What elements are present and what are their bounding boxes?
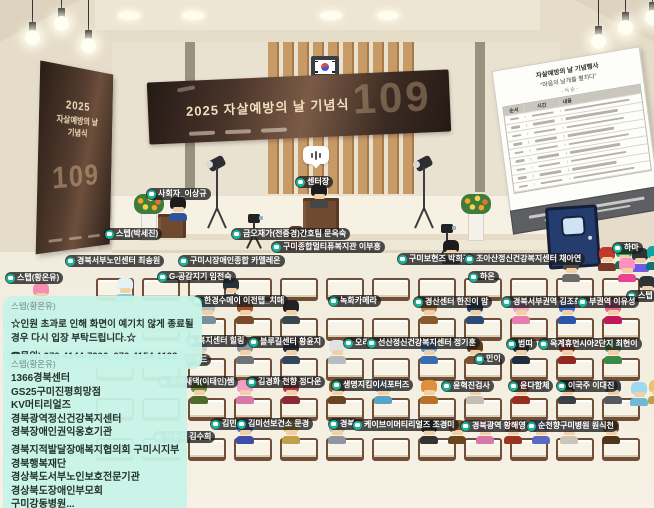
avatar-body — [420, 396, 438, 404]
avatar-face — [226, 288, 237, 293]
avatar-face — [286, 350, 297, 355]
name-tag-label: 스텝(황온유) — [17, 272, 59, 284]
avatar-body — [562, 274, 580, 282]
avatar-body — [512, 316, 530, 324]
name-tag-label: 구미보현즈 박희경 — [409, 253, 470, 265]
name-tag-label: 하온 — [480, 271, 495, 283]
ceiling-light-icon — [118, 11, 140, 20]
avatar[interactable] — [418, 380, 440, 404]
chat-line: 구미강동병원... — [11, 498, 179, 508]
name-tag: 생명지킴이서포터즈 — [331, 379, 413, 391]
avatar-face — [173, 207, 184, 212]
name-tag-label: 구미종합멀티퓨복지관 이부흥 — [283, 241, 381, 253]
name-tag-label: 옥계휴먼시아2단지 최현이 — [550, 338, 638, 350]
name-tag-label: 김민 — [222, 418, 237, 430]
chat-line: GS25구미진평희망점 — [11, 386, 179, 400]
chat-bubble-icon — [232, 230, 241, 239]
name-tag-label: 블루길센터 황윤지 — [260, 336, 321, 348]
avatar-face — [634, 392, 645, 397]
avatar-body — [236, 356, 254, 364]
name-tag-label: 녹화카메라 — [340, 295, 377, 307]
name-tag-label: G-공감지기 임전숙 — [169, 271, 232, 283]
chat-bubble-icon — [66, 257, 75, 266]
avatar-body — [512, 356, 530, 364]
lamp-bulb — [81, 38, 96, 53]
name-tag-label: 순천향구미병원 원식천 — [538, 420, 614, 432]
name-tag-label: 경북서부권역 김조희 — [513, 296, 581, 308]
chat-bubble-icon — [247, 378, 256, 387]
chat-line: KV머티리얼즈 — [11, 399, 179, 413]
schedule-cell — [507, 132, 528, 138]
avatar[interactable] — [167, 197, 189, 221]
chat-line: ☆인원 초과로 인해 화면이 예기치 않게 종료될 — [3, 318, 202, 332]
avatar-face — [202, 310, 213, 315]
avatar-body — [236, 396, 254, 404]
avatar-face — [424, 310, 435, 315]
name-tag: 금오재가(전중경)간호팀 문옥숙 — [231, 228, 350, 240]
avatar-body — [476, 436, 494, 444]
chat-bubble-icon — [398, 255, 407, 264]
avatar-body — [618, 274, 636, 282]
ceiling-light-icon — [377, 11, 399, 20]
avatar-body — [532, 436, 550, 444]
avatar-face — [286, 390, 297, 395]
cell-text-bar — [536, 144, 559, 150]
chat-bubble-icon — [539, 340, 548, 349]
name-tag: 구미시장애인종합 카멜레온 — [178, 255, 285, 267]
name-tag: 센터장 — [295, 176, 333, 188]
avatar-face — [562, 310, 573, 315]
avatar-body — [282, 356, 300, 364]
avatar-face — [602, 257, 613, 262]
chat-line: 경우 다시 입장 부탁드립니다.☆ — [11, 332, 194, 346]
cell-text-bar — [539, 170, 562, 176]
avatar-face — [286, 310, 297, 315]
schedule-board[interactable]: 자살예방의 날 기념행사 “마음의 날개를 펼치다” - 식 순 - 순서시간내… — [492, 46, 654, 214]
avatar-face — [608, 350, 619, 355]
avatar-face — [622, 268, 633, 273]
lamp-rod — [625, 0, 626, 12]
cell-text-bar — [519, 184, 528, 188]
cell-text-bar — [537, 153, 560, 159]
chat-bubble-icon — [329, 420, 338, 429]
avatar-face — [120, 288, 131, 293]
name-tag: 사회자_이상규 — [146, 188, 211, 200]
avatar-body — [602, 436, 620, 444]
name-tag: 경북서부권역 김조희 — [501, 296, 585, 308]
avatar-face — [470, 310, 481, 315]
cell-text-bar — [515, 150, 524, 154]
spotlight-right — [415, 158, 435, 230]
avatar-body — [604, 396, 622, 404]
name-tag-label: 선산정신건강복지센터 정기훈 — [378, 337, 476, 349]
name-tag-label: 조아산정신건강복지센터 채아연 — [476, 253, 581, 265]
chat-bubble-icon — [6, 274, 15, 283]
avatar-body — [282, 396, 300, 404]
schedule-cell — [509, 149, 530, 155]
chat-line: 경북장애인권익옹호기관 — [11, 426, 179, 440]
avatar-body — [169, 213, 187, 221]
name-tag-label: 한경수메이 이전탭_치매 — [204, 295, 284, 307]
name-tag: 순천향구미병원 원식천 — [526, 420, 618, 432]
avatar-face — [650, 256, 654, 261]
cell-text-bar — [533, 119, 556, 125]
name-tag-label: 스텝 — [638, 290, 653, 302]
lamp-bulb — [54, 16, 69, 31]
name-tag-label: 생명지킴이서포터즈 — [343, 379, 409, 391]
name-tag: 조아산정신건강복지센터 채아연 — [464, 253, 585, 265]
avatar-body — [558, 396, 576, 404]
cell-text-bar — [516, 159, 525, 163]
schedule-cell — [511, 158, 532, 164]
schedule-cell — [508, 141, 529, 147]
chat-bubble-icon — [105, 230, 114, 239]
name-tag: 경북광역 황해영 — [460, 420, 530, 432]
name-tag: 스텝(황온유) — [5, 272, 63, 284]
avatar-face — [332, 350, 343, 355]
name-tag: 윤혁진검사 — [441, 380, 494, 392]
chat-bubble-icon — [442, 382, 451, 391]
schedule-cell — [506, 124, 527, 130]
name-tag-label: 김경화 천향 정다운 — [258, 376, 321, 388]
name-tag-label: 경북서부노인센터 최송원 — [77, 255, 160, 267]
chat-line: 경북지적발달장애복지협의회 구미시지부 — [3, 444, 187, 458]
chat-bubble-icon — [329, 297, 338, 306]
name-tag-label: 부권역 이유성 — [589, 296, 635, 308]
avatar-face — [240, 390, 251, 395]
wall-pillar — [475, 42, 485, 192]
chat-bubble-icon — [249, 338, 258, 347]
lamp-bulb — [645, 10, 654, 25]
ceiling-corner-right — [574, 0, 654, 42]
ceiling-light-icon — [182, 11, 204, 20]
name-tag: 윤다함체 — [508, 380, 553, 392]
chat-bubble-icon — [272, 243, 281, 252]
name-tag: 하마 — [612, 242, 643, 254]
name-tag-label: 경북광역 황해영 — [472, 420, 526, 432]
chat-bubble-icon — [179, 257, 188, 266]
avatar-face — [608, 310, 619, 315]
avatar-body — [604, 316, 622, 324]
main-event-banner: 2025 자살예방의 날 기념식 109 — [147, 69, 451, 144]
audience-desk[interactable] — [372, 438, 410, 461]
name-tag-label: 윤다함체 — [520, 380, 549, 392]
chat-bubble-icon — [237, 420, 246, 429]
avatar-body — [328, 396, 346, 404]
avatar-body — [420, 356, 438, 364]
name-tag: 부권역 이유성 — [577, 296, 639, 308]
flower-stand-right — [461, 194, 491, 241]
name-tag-label: 하마 — [624, 242, 639, 254]
name-tag: 옥계휴먼시아2단지 최현이 — [538, 338, 642, 350]
name-tag-label: 민이 — [486, 353, 501, 365]
avatar-face — [516, 350, 527, 355]
chat-bubble-icon — [414, 298, 423, 307]
cell-text-bar — [535, 136, 558, 142]
name-tag-label: 금오재가(전중경)간호팀 문옥숙 — [243, 228, 346, 240]
cell-text-bar — [513, 133, 522, 137]
name-tag: 범띠 — [506, 338, 537, 350]
schedule-cell — [514, 183, 535, 189]
chat-author: 스텝(황온유) — [11, 358, 179, 370]
lamp-bulb — [25, 30, 40, 45]
chat-line: 경상북도장애인부모회 — [11, 485, 179, 499]
name-tag: 이국주 이대진 — [556, 380, 618, 392]
cell-text-bar — [534, 128, 557, 134]
avatar-body — [448, 436, 466, 444]
avatar-face — [194, 390, 205, 395]
chat-bubble-icon — [367, 339, 376, 348]
schedule-cell — [513, 174, 534, 180]
chat-bubble-icon — [465, 255, 474, 264]
name-tag: 김경화 천향 정다운 — [246, 376, 325, 388]
name-tag: 구미종합멀티퓨복지관 이부흥 — [271, 241, 385, 253]
chat-bubble-icon — [353, 421, 362, 430]
voice-indicator-icon — [303, 146, 329, 164]
avatar[interactable] — [616, 258, 638, 282]
ceiling-recess — [95, 0, 540, 30]
avatar-body — [560, 436, 578, 444]
chat-bubble-icon — [332, 381, 341, 390]
chat-bubble-icon — [296, 178, 305, 187]
name-tag-label: 구미시장애인종합 카멜레온 — [190, 255, 281, 267]
chat-bubble-icon — [557, 382, 566, 391]
avatar-body — [328, 356, 346, 364]
name-tag: 선산정신건강복지센터 정기훈 — [366, 337, 480, 349]
avatar-body — [604, 356, 622, 364]
name-tag: 한경수메이 이전탭_치매 — [192, 295, 288, 307]
lamp-rod — [598, 0, 599, 26]
lamp-rod — [88, 0, 89, 30]
chat-bubble-icon — [344, 339, 353, 348]
chat-bubble-icon — [613, 244, 622, 253]
name-tag-label: 센터장 — [307, 176, 329, 188]
chat-line: 경상북도서부노인보호전문기관 — [11, 471, 179, 485]
chat-notice-orglist: 스텝(황온유) 1366경북센터GS25구미진평희망점KV머티리얼즈경북광역정신… — [3, 354, 187, 508]
avatar-body — [328, 436, 346, 444]
schedule-cell — [505, 115, 526, 121]
cell-text-bar — [540, 178, 563, 184]
avatar-body — [420, 436, 438, 444]
avatar-body — [420, 316, 438, 324]
avatar-body — [190, 396, 208, 404]
avatar-face — [562, 350, 573, 355]
name-tag-label: 범띠 — [518, 338, 533, 350]
avatar-face — [424, 350, 435, 355]
spotlight-left — [208, 158, 228, 230]
avatar-body — [282, 316, 300, 324]
banner-number: 109 — [352, 72, 433, 123]
name-tag: 구미보현즈 박희경 — [397, 253, 474, 265]
avatar-face — [286, 430, 297, 435]
chat-line: 경북광역정신건강복지센터 — [11, 413, 179, 427]
avatar-face — [516, 310, 527, 315]
chat-bubble-icon — [147, 190, 156, 199]
avatar-body — [512, 396, 530, 404]
name-tag-label: 케이브이머티리얼즈 조경미 — [364, 419, 455, 431]
cell-text-bar — [538, 161, 561, 167]
cell-text-bar — [517, 167, 526, 171]
avatar-body — [466, 396, 484, 404]
name-tag: 민이 — [474, 353, 505, 365]
avatar-body — [236, 436, 254, 444]
lamp-rod — [61, 0, 62, 8]
chat-bubble-icon — [158, 273, 167, 282]
door-window — [561, 215, 586, 237]
chat-bubble-icon — [527, 422, 536, 431]
name-tag-label: 사회자_이상규 — [158, 188, 207, 200]
cell-text-bar — [518, 176, 527, 180]
avatar[interactable] — [644, 246, 654, 270]
side-event-banner: 2025 자살예방의 날 기념식 109 — [36, 60, 114, 254]
cell-text-bar — [510, 117, 519, 121]
avatar-body — [310, 200, 328, 208]
ceiling-light-icon — [320, 11, 342, 20]
banner-logo-mark — [177, 85, 195, 92]
avatar-face — [566, 268, 577, 273]
name-tag: 경북서부노인센터 최송원 — [65, 255, 164, 267]
chat-bubble-icon — [578, 298, 587, 307]
avatar-body — [374, 396, 392, 404]
chat-bubble-icon — [211, 420, 220, 429]
avatar-body — [466, 316, 484, 324]
name-tag: 블루길센터 황윤지 — [248, 336, 325, 348]
avatar-body — [558, 356, 576, 364]
chat-bubble-icon — [475, 355, 484, 364]
name-tag: 경산센터 한진이 맘 — [413, 296, 492, 308]
chat-author: 스텝(황온유) — [11, 300, 194, 312]
avatar-face — [240, 350, 251, 355]
chat-bubble-icon — [461, 422, 470, 431]
name-tag: 케이브이머티리얼즈 조경미 — [352, 419, 459, 431]
chat-bubble-icon — [507, 340, 516, 349]
name-tag-label: 경산센터 한진이 맘 — [425, 296, 488, 308]
cell-text-bar — [514, 142, 523, 146]
avatar-body — [558, 316, 576, 324]
schedule-cell — [512, 166, 533, 172]
name-tag: 하온 — [468, 271, 499, 283]
chat-bubble-icon — [502, 298, 511, 307]
sponsor-logos — [189, 128, 287, 136]
name-tag-label: 김미선보건소 문경 — [248, 418, 309, 430]
avatar-body — [648, 396, 654, 404]
avatar-body — [646, 262, 654, 270]
avatar-body — [282, 436, 300, 444]
avatar-face — [424, 390, 435, 395]
name-tag-label: 윤혁진검사 — [453, 380, 490, 392]
avatar[interactable] — [646, 380, 654, 404]
side-banner-logos — [49, 234, 100, 243]
avatar-body — [504, 436, 522, 444]
taegeuk-icon — [321, 63, 329, 71]
name-tag-label: 복지센터 힐링 — [198, 335, 244, 347]
avatar-face — [314, 194, 325, 199]
lamp-bulb — [591, 34, 606, 49]
avatar-body — [236, 316, 254, 324]
name-tag-label: 스텝(박세진) — [116, 228, 158, 240]
lamp-rod — [32, 0, 33, 22]
name-tag: 김미선보건소 문경 — [236, 418, 313, 430]
door-knob — [588, 236, 592, 240]
virtual-event-room: 2025 자살예방의 날 기념식 109 2025 자살예방의 날 기념식 10… — [0, 0, 654, 508]
avatar-face — [240, 430, 251, 435]
chat-line: 경북행복재단 — [11, 458, 179, 472]
chat-line: 1366경북센터 — [11, 372, 179, 386]
side-banner-number: 109 — [37, 157, 112, 198]
name-tag: G-공감지기 임전숙 — [157, 271, 236, 283]
chat-bubble-icon — [509, 382, 518, 391]
cell-text-bar — [532, 111, 555, 117]
event-title: 2025 자살예방의 날 기념식 — [186, 94, 350, 120]
name-tag: 스텝(박세진) — [104, 228, 162, 240]
lamp-bulb — [618, 20, 633, 35]
avatar-face — [332, 430, 343, 435]
name-tag: 녹화카메라 — [328, 295, 381, 307]
korean-flag — [315, 60, 335, 74]
chat-bubble-icon — [469, 273, 478, 282]
name-tag-label: 이국주 이대진 — [568, 380, 614, 392]
avatar-face — [240, 310, 251, 315]
audience-desk[interactable] — [372, 358, 410, 381]
cell-text-bar — [511, 125, 520, 129]
